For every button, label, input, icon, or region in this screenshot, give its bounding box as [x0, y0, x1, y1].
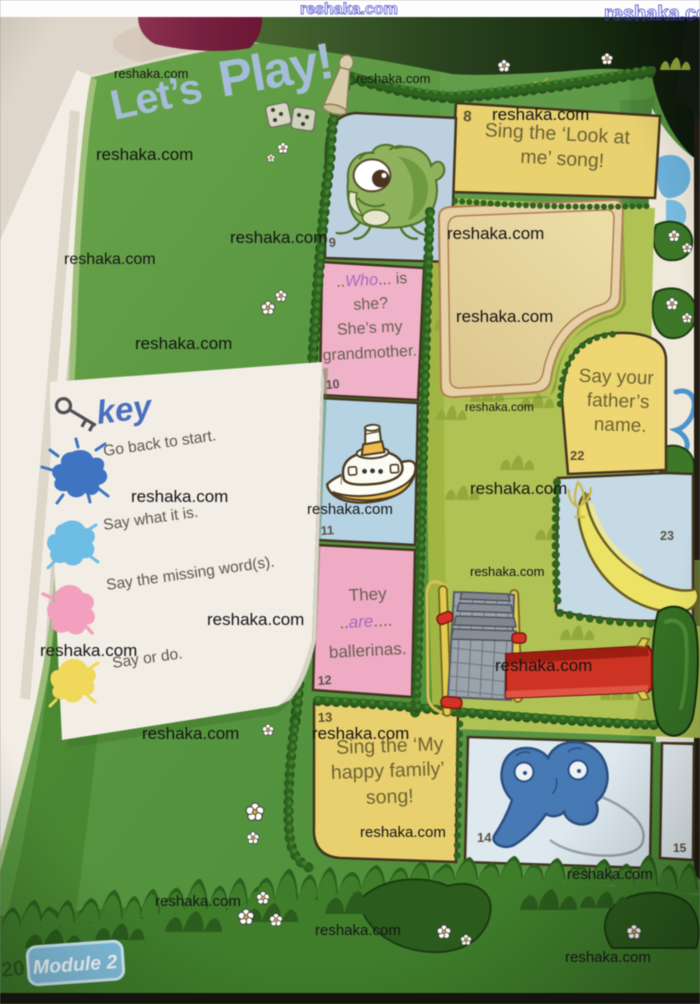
- svg-text:reshaka.com: reshaka.com: [470, 479, 567, 498]
- svg-text:reshaka.com: reshaka.com: [135, 334, 232, 353]
- svg-text:reshaka.com: reshaka.com: [207, 610, 304, 629]
- svg-text:reshaka.com: reshaka.com: [492, 105, 589, 124]
- svg-text:reshaka.com: reshaka.com: [64, 251, 156, 268]
- svg-text:reshaka.com: reshaka.com: [470, 564, 544, 579]
- svg-text:reshaka.com: reshaka.com: [465, 400, 534, 414]
- svg-text:reshaka.com: reshaka.com: [40, 641, 137, 660]
- svg-text:reshaka.com: reshaka.com: [142, 724, 239, 743]
- svg-text:reshaka.com: reshaka.com: [155, 893, 241, 910]
- svg-text:reshaka.com: reshaka.com: [604, 3, 700, 25]
- svg-text:reshaka.com: reshaka.com: [300, 1, 398, 18]
- svg-text:reshaka.com: reshaka.com: [495, 656, 592, 675]
- svg-text:reshaka.com: reshaka.com: [447, 224, 544, 243]
- svg-text:reshaka.com: reshaka.com: [565, 949, 651, 966]
- svg-text:reshaka.com: reshaka.com: [230, 228, 327, 247]
- svg-text:reshaka.com: reshaka.com: [356, 71, 430, 86]
- svg-text:reshaka.com: reshaka.com: [131, 487, 228, 506]
- svg-text:reshaka.com: reshaka.com: [312, 724, 409, 743]
- svg-text:reshaka.com: reshaka.com: [307, 501, 393, 518]
- svg-text:reshaka.com: reshaka.com: [96, 145, 193, 164]
- svg-text:reshaka.com: reshaka.com: [456, 307, 553, 326]
- svg-text:reshaka.com: reshaka.com: [360, 824, 446, 841]
- svg-text:reshaka.com: reshaka.com: [567, 866, 653, 883]
- svg-text:reshaka.com: reshaka.com: [315, 922, 401, 939]
- svg-text:reshaka.com: reshaka.com: [114, 66, 188, 81]
